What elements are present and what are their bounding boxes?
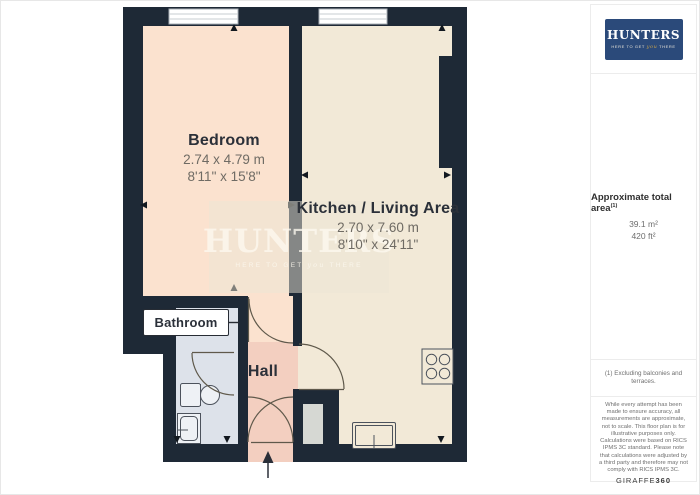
footnote-section: (1) Excluding balconies and terraces. [591,360,696,397]
bedroom-name: Bedroom [134,132,314,150]
hob-icon [422,349,453,384]
bathroom-name: Bathroom [155,315,218,330]
bathroom-label: Bathroom [143,309,229,336]
hall-label: Hall [223,363,303,381]
bedroom-dims-m: 2.74 x 4.79 m [134,152,314,169]
window-icon [319,9,387,24]
area-ft2: 420 ft² [631,231,655,241]
toilet-icon [181,384,220,407]
utility-panel [303,404,323,444]
footnote-text: (1) Excluding balconies and terraces. [597,370,690,386]
footnote-ref: (1) [611,203,618,209]
logo-section: HUNTERS HERE TO GET you THERE [591,5,696,74]
hall-name: Hall [223,363,303,381]
bedroom-label: Bedroom 2.74 x 4.79 m 8'11" x 15'8" [134,132,314,186]
window-icon [169,9,238,24]
wall-notch [439,56,452,168]
logo-tagline: HERE TO GET you THERE [611,44,675,50]
hunters-logo: HUNTERS HERE TO GET you THERE [605,19,683,60]
kitchen-dims-m: 2.70 x 7.60 m [288,220,468,237]
floor-bedroom-doorway [248,296,293,342]
floorplan-page: HUNTERS HERE TO GET you THERE Bedroom 2.… [0,0,700,495]
kitchen-dims-ft: 8'10" x 24'11" [288,237,468,254]
area-m2: 39.1 m² [629,219,658,229]
disclaimer-1: While every attempt has been made to ens… [598,402,689,438]
kitchen-name: Kitchen / Living Area [288,200,468,218]
logo-title: HUNTERS [607,29,680,41]
info-sidebar: HUNTERS HERE TO GET you THERE Approximat… [590,4,697,482]
giraffe360-brand: GIRAFFE360 [598,476,689,485]
disclaimer-section: While every attempt has been made to ens… [591,397,696,481]
shower-icon [177,414,201,444]
disclaimer-2: Calculations were based on RICS IPMS 3C … [598,438,689,474]
total-area-section: Approximate total area(1) 39.1 m² 420 ft… [591,74,696,360]
bedroom-dims-ft: 8'11" x 15'8" [134,169,314,186]
sink-icon [353,423,396,449]
area-heading: Approximate total area(1) [591,192,696,214]
kitchen-label: Kitchen / Living Area 2.70 x 7.60 m 8'10… [288,200,468,254]
watermark-tagline: HERE TO GET you THERE [235,261,362,269]
